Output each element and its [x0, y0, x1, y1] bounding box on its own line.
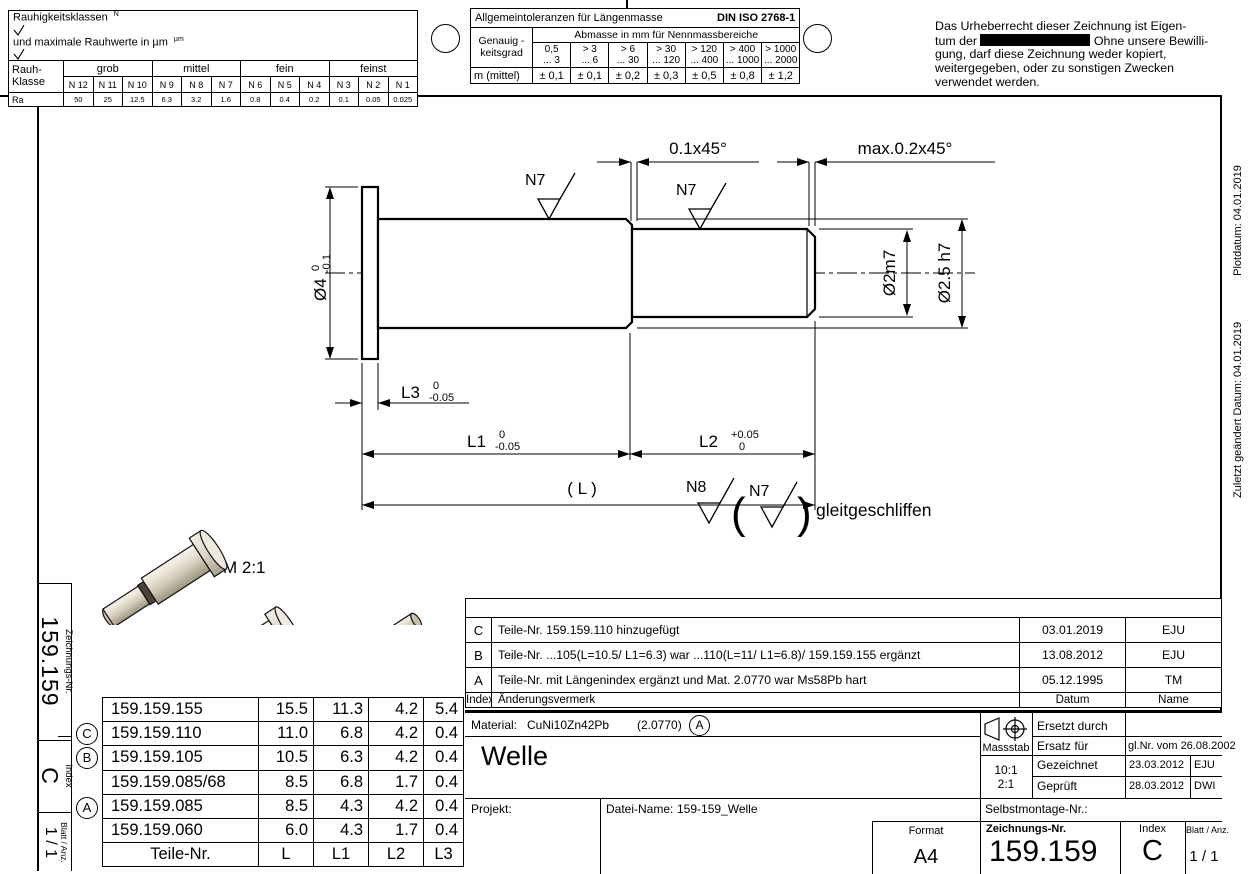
parts-table: 159.159.15515.511.34.25.4 159.159.11011.… [102, 697, 464, 867]
ersetzt-label: Ersetzt durch [1037, 719, 1108, 733]
drawing-sheet: { "roughness_table": { "title_prefix": "… [0, 0, 1248, 871]
genauigkeitsgrad-label: Genauig -keitsgrad [471, 28, 533, 68]
table-row: 159.159.085/688.56.81.70.4 [103, 770, 464, 794]
balloon-circle [431, 24, 460, 53]
shaft-drawing: 0.1x45° max.0.2x45° Ø4 0 -0.1 Ø2m7 Ø2.5 … [37, 95, 1222, 625]
last-changed-note: Zuletzt geändert Datum: 04.01.2019 [1232, 322, 1244, 498]
roughness-n7-label: N7 [749, 483, 770, 500]
tolerance-title: Allgemeintoleranzen für Längenmasse [475, 12, 663, 24]
svg-text:L2: L2 [699, 432, 718, 451]
flange-head [362, 187, 378, 359]
small-cylinder [632, 229, 815, 317]
projection-method-icon [982, 716, 1030, 742]
ersatz-label: Ersatz für [1037, 739, 1088, 753]
dim-l2: L2 +0.05 0 [699, 429, 759, 453]
balloon-circle [803, 24, 832, 53]
svg-text:0: 0 [499, 429, 505, 441]
table-row: 159.159.0858.54.34.20.4 [103, 794, 464, 818]
roughness-title: Rauhigkeitsklassen [13, 12, 108, 24]
tolerance-norm: DIN ISO 2768-1 [717, 12, 795, 24]
ersatz-value: gl.Nr. vom 26.08.2002 [1128, 740, 1236, 752]
zeichnungsnr-value: 159.159 [36, 616, 63, 706]
svg-text:Ø4: Ø4 [311, 278, 330, 301]
material-value: CuNi10Zn42Pb [527, 718, 609, 732]
dim-chamfer-end: max.0.2x45° [858, 139, 953, 158]
gezeichnet-date: 23.03.2012 [1129, 759, 1184, 771]
tolerance-table: Allgemeintoleranzen für LängenmasseDIN I… [470, 8, 800, 84]
check-symbol-icon [13, 48, 25, 60]
format-value: A4 [872, 846, 980, 869]
dim-l3: L3 0 -0.05 [401, 380, 454, 404]
part-3d-render-2 [177, 604, 304, 625]
svg-text:-0.05: -0.05 [495, 441, 520, 453]
dim-l-total: ( L ) [567, 479, 597, 498]
paren-close: ) [797, 489, 812, 538]
svg-text:L1: L1 [467, 432, 486, 451]
zeichnungsnr-label: Zeichnungs-Nr. [63, 629, 74, 693]
svg-text:Ø2m7: Ø2m7 [880, 250, 899, 296]
revision-header-row: IndexÄnderungsvermerkDatumName [466, 693, 1222, 708]
copyright-note: Das Urheberrecht dieser Zeichnung ist Ei… [935, 20, 1243, 89]
blatt-value: 1 / 1 [1186, 848, 1222, 865]
paren-open: ( [731, 489, 746, 538]
table-row: 159.159.0606.04.31.70.4 [103, 818, 464, 842]
dim-l1: L1 0 -0.05 [467, 429, 520, 453]
dim-dia-mid: Ø2.5 h7 [935, 243, 954, 304]
material-number: (2.0770) [637, 718, 682, 732]
part-title: Welle [481, 741, 548, 772]
strip-divider [37, 740, 71, 741]
margin-drawing-number: Zeichnungs-Nr. 159.159 [38, 585, 72, 738]
strip-divider [37, 583, 71, 584]
massstab-label: Massstab [980, 742, 1032, 754]
roughness-table: RauhigkeitsklassenN und maximale Rauhwer… [8, 10, 418, 107]
geprueft-label: Geprüft [1037, 779, 1077, 793]
selbstmontage-label: Selbstmontage-Nr.: [985, 802, 1088, 816]
gezeichnet-name: EJU [1194, 759, 1215, 771]
svg-text:L3: L3 [401, 383, 420, 402]
zeichnungsnr-value: 159.159 [989, 835, 1097, 869]
index-label: Index [63, 764, 74, 787]
geprueft-name: DWI [1194, 780, 1215, 792]
revision-row: CTeile-Nr. 159.159.110 hinzugefügt03.01.… [466, 618, 1222, 643]
geprueft-date: 28.03.2012 [1129, 780, 1184, 792]
material-label: Material: [471, 718, 517, 732]
scale-value-2: 2:1 [980, 777, 1032, 791]
gezeichnet-label: Gezeichnet [1037, 758, 1098, 772]
blatt-label: Blatt / Anz. [59, 822, 69, 863]
shaft-outline [362, 187, 815, 359]
dimension-arrows [326, 158, 966, 509]
roughness-n8-label: N8 [686, 479, 707, 496]
svg-text:-0.05: -0.05 [429, 392, 454, 404]
large-cylinder [378, 219, 632, 328]
revision-marker-a: A [76, 797, 98, 819]
datei-value: 159-159_Welle [677, 802, 758, 816]
svg-text:-0.1: -0.1 [321, 254, 333, 273]
svg-text:Ø2.5 h7: Ø2.5 h7 [935, 243, 954, 304]
roughness-n7-label: N7 [676, 182, 697, 199]
redacted-company-name [980, 34, 1090, 46]
index-value: C [1120, 835, 1185, 868]
table-header-row: Teile-Nr.LL1L2L3 [103, 843, 464, 867]
blatt-label: Blatt / Anz. [1186, 825, 1222, 835]
margin-sheet: Blatt / Anz. 1 / 1 [38, 814, 72, 871]
dim-dia-end: Ø2m7 [880, 250, 899, 296]
finish-note: gleitgeschliffen [816, 500, 931, 520]
part-3d-render-1 [93, 528, 230, 625]
scale-value-1: 10:1 [980, 763, 1032, 777]
revision-marker-b: B [76, 747, 98, 769]
rauh-klasse-label: Rauh-Klasse [9, 61, 64, 93]
empty-revision-row [466, 599, 1222, 618]
margin-date-notes: Zuletzt geändert Datum: 04.01.2019 Plotd… [1229, 83, 1247, 498]
model-scale-note: M 2:1 [223, 558, 266, 577]
revision-marker-c: C [76, 723, 98, 745]
table-row: 159.159.15515.511.34.25.4 [103, 698, 464, 722]
table-row: 159.159.10510.56.34.20.4 [103, 746, 464, 770]
format-label: Format [872, 825, 980, 837]
revision-table: CTeile-Nr. 159.159.110 hinzugefügt03.01.… [465, 598, 1222, 708]
plot-date-note: Plotdatum: 04.01.2019 [1232, 165, 1244, 276]
table-row: 159.159.11011.06.84.20.4 [103, 722, 464, 746]
revision-row: BTeile-Nr. ...105(L=10.5/ L1=6.3) war ..… [466, 643, 1222, 668]
projekt-label: Projekt: [471, 802, 512, 816]
check-symbol-icon [13, 24, 25, 36]
roughness-n7-label: N7 [525, 172, 546, 189]
dimension-lines [325, 162, 995, 510]
datei-label: Datei-Name: [606, 802, 673, 816]
strip-divider [37, 812, 71, 813]
part-3d-render-3 [321, 600, 431, 625]
svg-text:0: 0 [433, 380, 439, 392]
revision-row: ATeile-Nr. mit Längenindex ergänzt und M… [466, 668, 1222, 693]
index-value: C [36, 767, 63, 785]
svg-text:0: 0 [739, 441, 745, 453]
margin-index: Index C [38, 742, 72, 810]
dim-chamfer-step: 0.1x45° [669, 139, 727, 158]
blatt-value: 1 / 1 [41, 827, 59, 858]
index-label: Index [1120, 823, 1185, 835]
svg-text:+0.05: +0.05 [731, 429, 759, 441]
material-revision-marker: A [689, 715, 710, 736]
title-block: Material: CuNi10Zn42Pb (2.0770) A Welle … [465, 710, 1222, 874]
zeichnungsnr-label: Zeichnungs-Nr. [986, 823, 1066, 835]
